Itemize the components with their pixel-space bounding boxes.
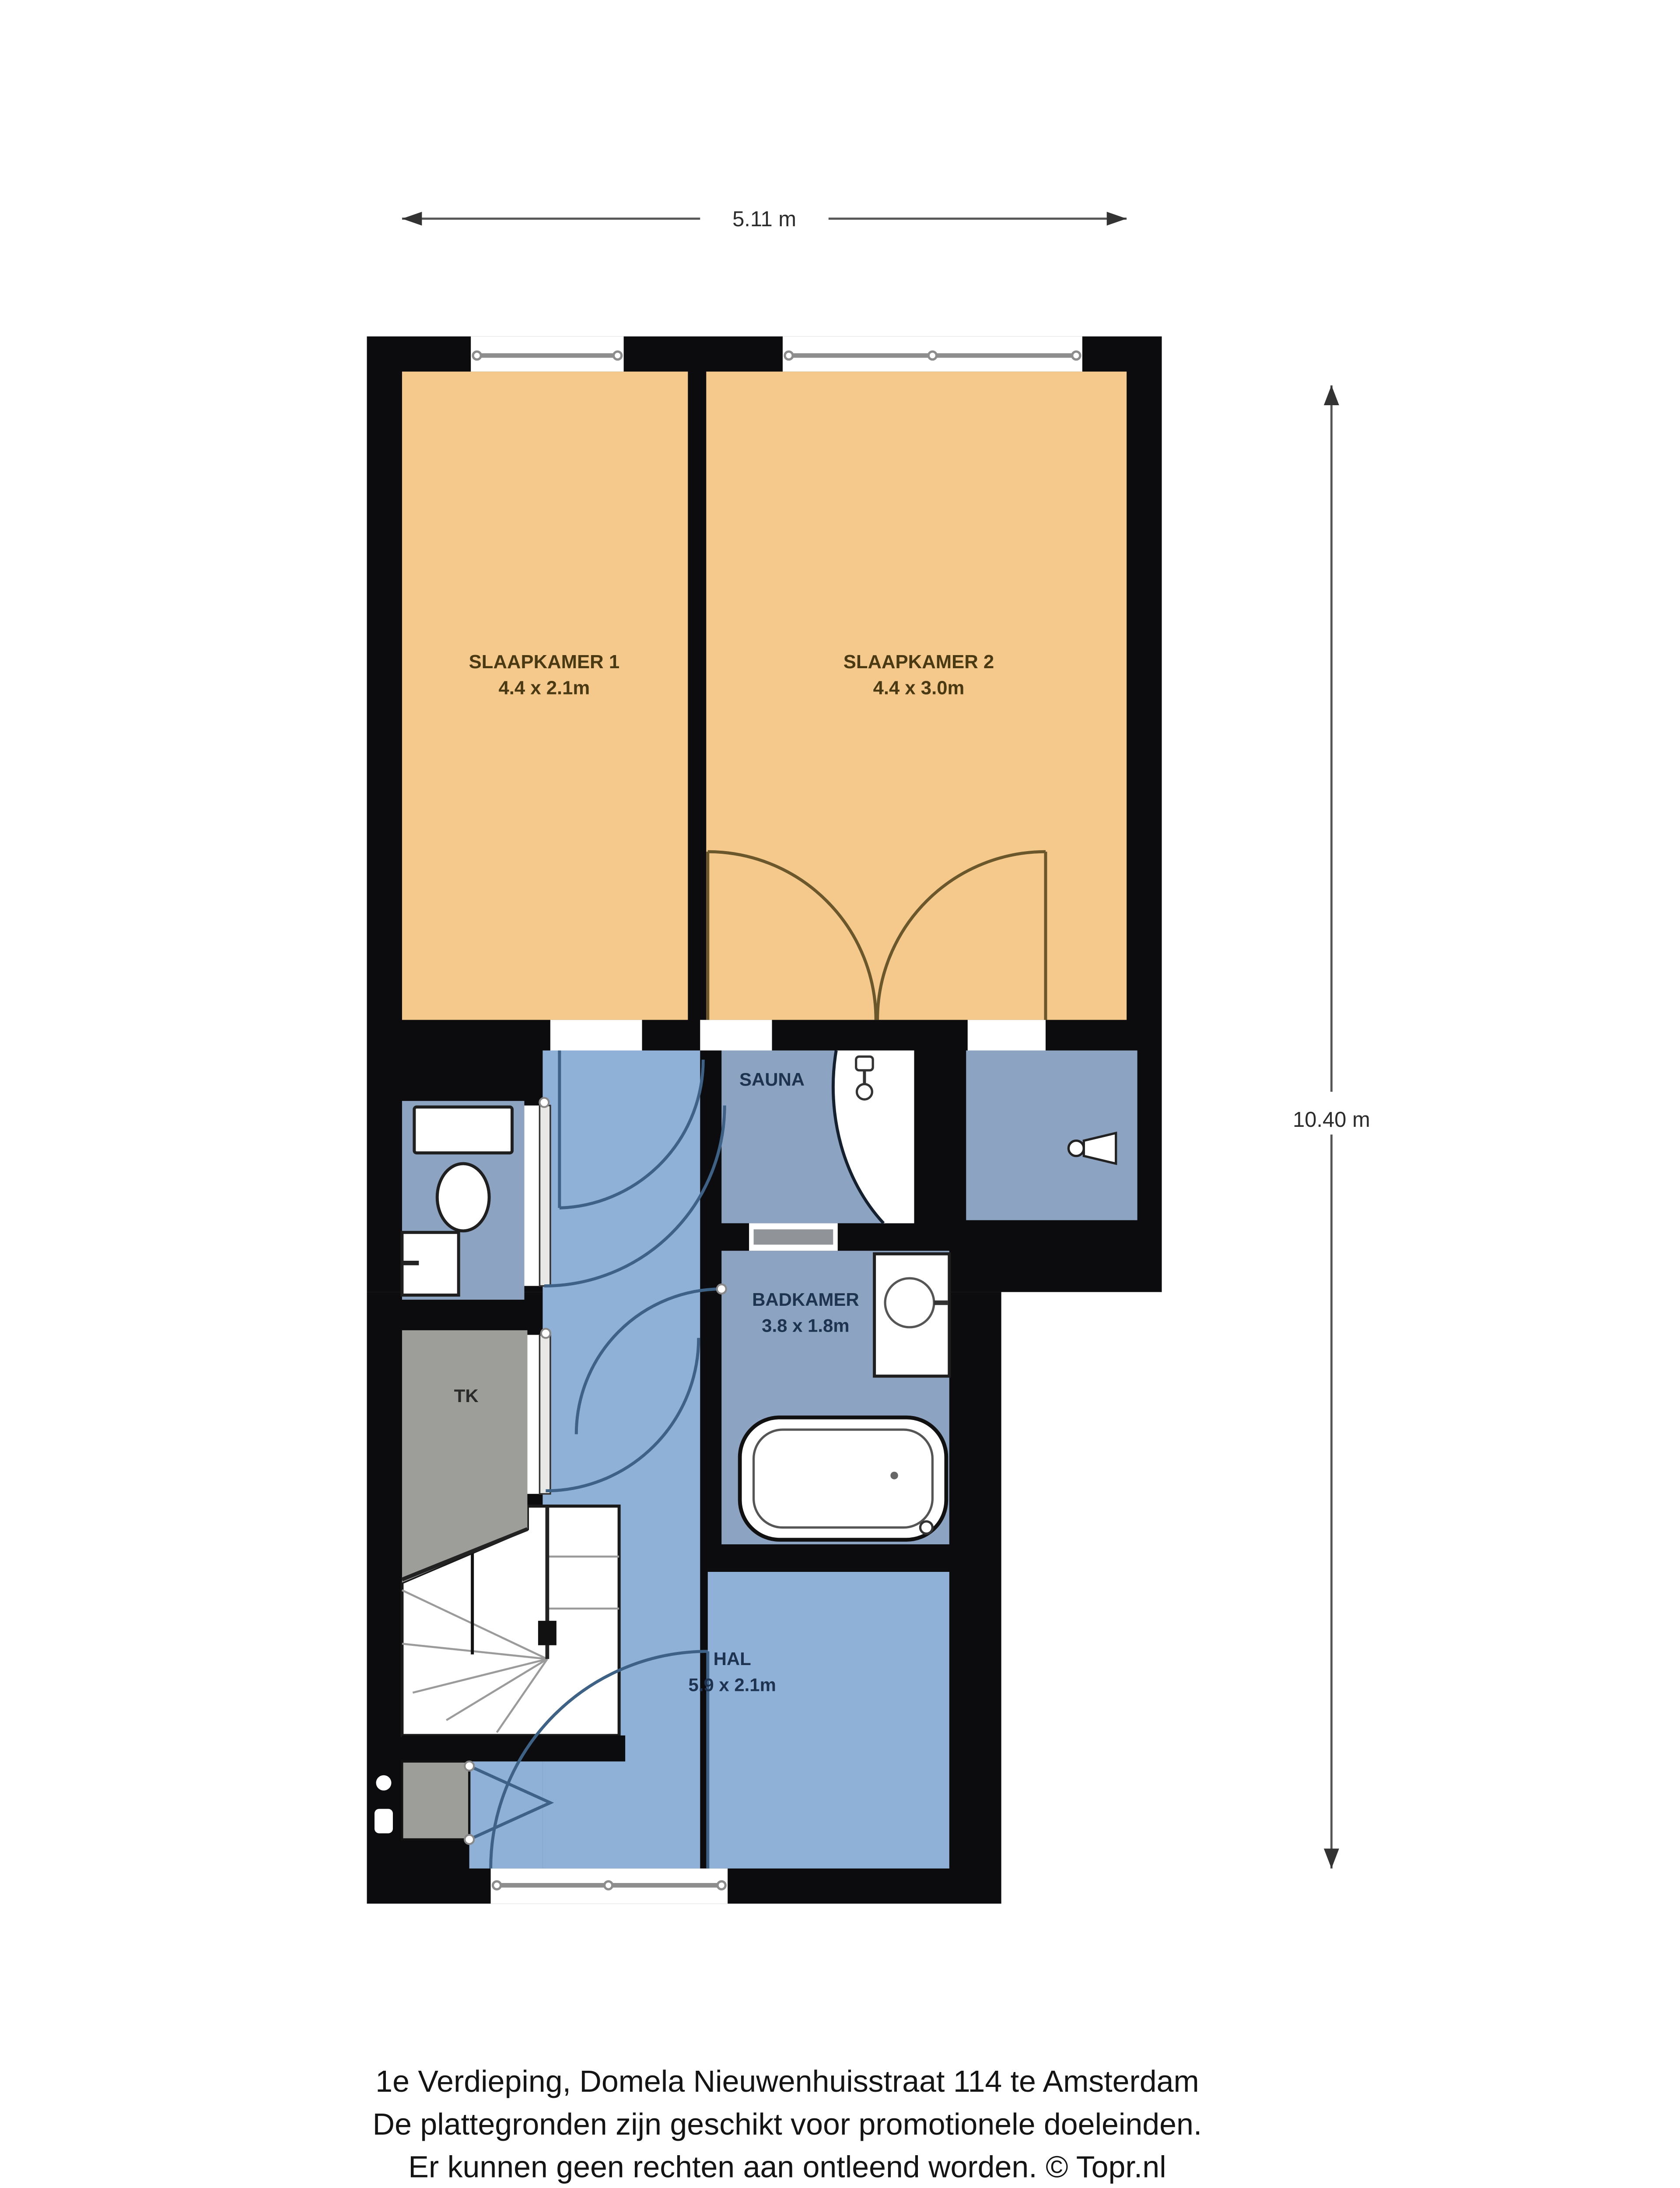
caption-line-2: De plattegronden zijn geschikt voor prom… — [373, 2107, 1202, 2141]
label-badkamer-name: BADKAMER — [752, 1289, 859, 1310]
window-icon — [471, 337, 623, 372]
label-hal-size: 5.9 x 2.1m — [688, 1675, 776, 1695]
label-badkamer-size: 3.8 x 1.8m — [762, 1315, 849, 1336]
label-hal-name: HAL — [714, 1648, 751, 1669]
wall-under-stairs — [402, 1736, 625, 1761]
meter-icon — [376, 1775, 392, 1791]
dimension-width-label: 5.11 m — [732, 207, 796, 231]
window-icon — [491, 1869, 728, 1904]
stair-newel — [538, 1621, 556, 1645]
bathtub-icon — [740, 1417, 946, 1540]
label-slaapkamer2-name: SLAAPKAMER 2 — [843, 651, 994, 673]
label-tk-name: TK — [454, 1385, 479, 1406]
floorplan-canvas: 5.11 m 10.40 m SLAAPKAMER 1 4.4 x 2.1m S… — [0, 0, 1680, 2188]
hand-basin-icon — [402, 1232, 458, 1295]
label-slaapkamer1-name: SLAAPKAMER 1 — [469, 651, 619, 673]
washbasin-icon — [875, 1254, 949, 1376]
label-slaapkamer2-size: 4.4 x 3.0m — [873, 677, 965, 698]
caption-line-3: Er kunnen geen rechten aan ontleend word… — [408, 2150, 1166, 2184]
sliding-door-icon — [749, 1223, 838, 1251]
label-slaapkamer1-size: 4.4 x 2.1m — [499, 677, 590, 698]
caption: 1e Verdieping, Domela Nieuwenhuisstraat … — [373, 2064, 1202, 2184]
caption-line-1: 1e Verdieping, Domela Nieuwenhuisstraat … — [375, 2064, 1199, 2098]
window-icon — [783, 337, 1082, 372]
meter-icon — [374, 1809, 393, 1834]
dimension-height-label: 10.40 m — [1293, 1108, 1370, 1132]
label-sauna-name: SAUNA — [739, 1069, 805, 1090]
